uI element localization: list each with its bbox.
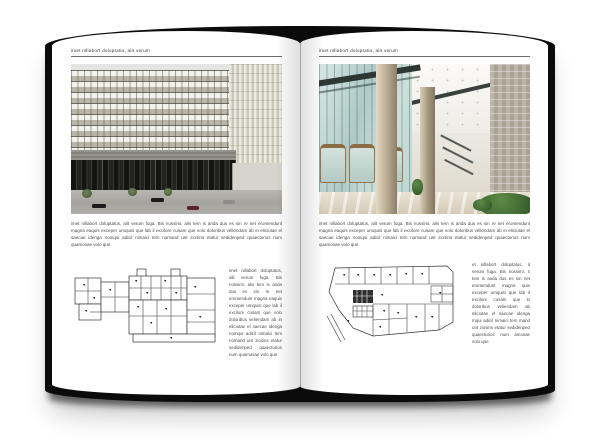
mechanical-band — [71, 150, 236, 161]
revolving-door — [320, 144, 346, 183]
car — [187, 206, 199, 210]
header-rule — [71, 56, 282, 57]
body-paragraph: imet nillabort doluptatus, alit verum fu… — [71, 221, 282, 249]
plan-row: et nillabort doluptatus, it verum fuga. … — [319, 258, 530, 363]
revolving-door — [349, 144, 375, 183]
tree — [82, 189, 92, 198]
sidebar-text: et nillabort doluptatus, it verum fuga. … — [472, 258, 530, 346]
scene: imet nillabort doluptatio, alit verum — [0, 0, 600, 446]
sidebar-text: imet nillabort doluptatus, alit verum fu… — [229, 264, 282, 359]
book-spine — [300, 30, 301, 394]
potted-plant — [412, 179, 423, 195]
page-right: imet nillabort doluptatio, alit verum — [300, 31, 548, 395]
tree — [128, 188, 137, 196]
lobby-column — [420, 87, 435, 215]
white-podium — [232, 163, 282, 192]
car — [151, 198, 164, 202]
page-right-content: imet nillabort doluptatio, alit verum — [300, 31, 548, 395]
lobby-column — [376, 64, 397, 214]
open-book: imet nillabort doluptatio, alit verum — [45, 26, 555, 402]
street — [71, 190, 282, 214]
floor-plan-drawing — [319, 258, 464, 358]
floor-plan-box — [71, 264, 221, 361]
plan-row: imet nillabort doluptatus, alit verum fu… — [71, 264, 282, 361]
building-exterior-photo — [71, 64, 282, 214]
car — [223, 200, 235, 204]
lobby-interior-photo — [319, 64, 530, 214]
page-header: imet nillabort doluptatio, alit verum — [319, 48, 530, 53]
car — [92, 204, 106, 208]
office-facade — [71, 70, 231, 151]
glass-storefront — [71, 160, 236, 192]
header-rule — [319, 56, 530, 57]
body-paragraph: imet nillabort doluptatus, alit verum fu… — [319, 221, 530, 249]
floor-plan-drawing — [71, 264, 221, 356]
floor-plan-box — [319, 258, 464, 363]
page-left-content: imet nillabort doluptatio, alit verum — [52, 31, 300, 395]
page-left: imet nillabort doluptatio, alit verum — [52, 31, 300, 395]
planter-greenery — [473, 199, 492, 211]
tree — [164, 188, 172, 196]
page-header: imet nillabort doluptatio, alit verum — [71, 48, 282, 53]
